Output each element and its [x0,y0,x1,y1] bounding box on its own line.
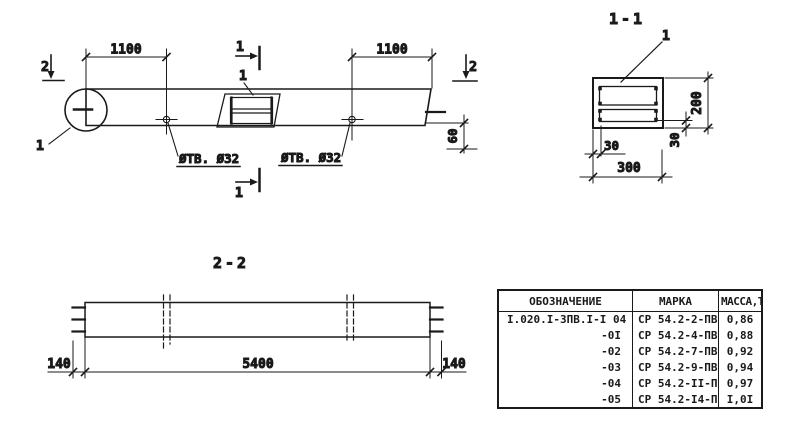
section-1-1-rebar-label: 1 [662,28,670,44]
insert-leader-label: 1 [239,68,247,84]
section-2-2-view: 2-2 140 540 [47,254,466,378]
section-marker-1-bottom-label: 1 [235,185,243,201]
col-header-mass: МАССА,Т [719,291,761,312]
table-cell-designation: -05 [499,391,633,407]
section-1-1-body [593,42,663,128]
dim-60-label: 60 [445,128,460,143]
dim-1100-right-label: 1100 [376,43,407,58]
table-cell-mass: 0,88 [719,328,761,344]
dim-30-right-label: 30 [667,132,682,147]
end-detail-circle [49,89,107,144]
section-marker-2-right-label: 2 [469,59,477,75]
dim-30-left-label: 30 [604,138,619,153]
table-cell-designation: -03 [499,359,633,375]
dim-1100-right-lines [349,49,436,140]
section-1-1-title: 1-1 [609,10,645,28]
table-cell-mass: 0,94 [719,359,761,375]
dim-140-left-label: 140 [47,357,71,372]
table-cell-mass: I,0I [719,391,761,407]
section-2-2-body [73,295,443,348]
table-cell-mark: СР 54.2-4-ПВ [633,328,719,344]
table-cell-mark: СР 54.2-I4-ПВ [633,391,719,407]
dim-140-right-label: 140 [442,357,466,372]
table-cell-mass: 0,86 [719,312,761,328]
table-cell-designation: -02 [499,344,633,360]
dim-200-label: 200 [690,91,705,115]
table-cell-mark: СР 54.2-II-ПВ [633,375,719,391]
section-marker-2-left-label: 2 [41,59,49,75]
section-2-2-title: 2-2 [213,254,249,272]
col-header-designation: ОБОЗНАЧЕНИЕ [499,291,633,312]
table-cell-mark: СР 54.2-2-ПВ [633,312,719,328]
drawing-sheet: 1 2 1100 1 [0,0,788,424]
section-1-1-view: 1-1 1 200 [580,10,713,183]
elevation-view: 1 2 1100 1 [36,39,477,201]
hole-left-label: ØТВ. Ø32 [178,151,239,166]
table-cell-mark: СР 54.2-9-ПВ [633,359,719,375]
section-marker-1-top-label: 1 [236,39,244,55]
spec-table: ОБОЗНАЧЕНИЕ МАРКА МАССА,Т I.020.I-3ПВ.I-… [497,289,763,409]
table-cell-mass: 0,97 [719,375,761,391]
col-header-mark: МАРКА [633,291,719,312]
table-cell-designation: -04 [499,375,633,391]
dim-300-label: 300 [617,161,641,176]
detail-circle-label: 1 [36,138,44,154]
table-cell-designation: -0I [499,328,633,344]
table-cell-mark: СР 54.2-7-ПВ [633,344,719,360]
dim-5400-label: 5400 [242,357,273,372]
table-cell-designation: I.020.I-3ПВ.I-I 04 [499,312,633,328]
dim-1100-left-label: 1100 [110,43,141,58]
table-cell-mass: 0,92 [719,344,761,360]
rebar-dots [598,87,658,122]
hole-right-label: ØТВ. Ø32 [280,150,341,165]
